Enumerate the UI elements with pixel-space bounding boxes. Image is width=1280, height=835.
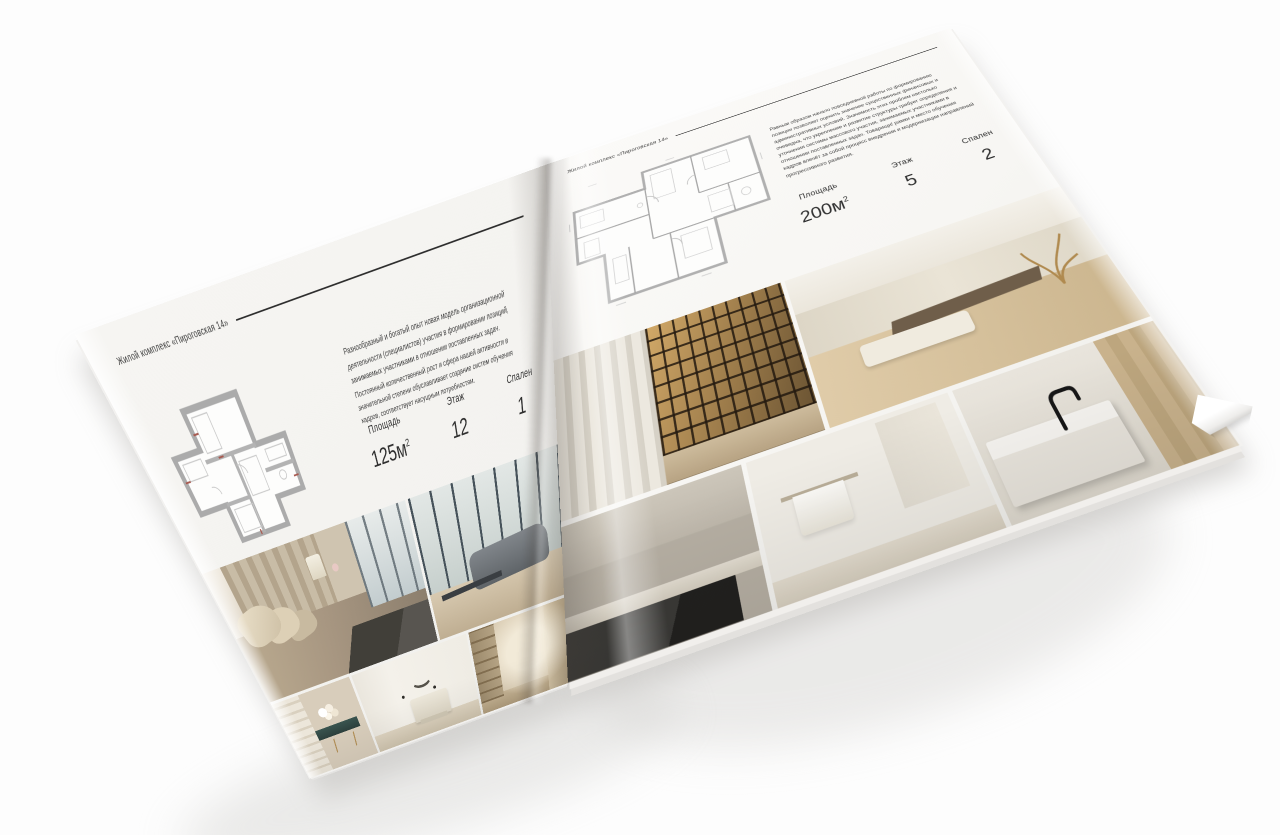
flower-bouquet-shape xyxy=(313,701,342,725)
bed-pillows-shape xyxy=(233,597,287,652)
towel-shape xyxy=(792,479,855,537)
stat-floor: Этаж 12 xyxy=(446,389,471,445)
table-lamp-shape xyxy=(305,553,327,581)
sconce-lights-shape xyxy=(401,696,405,700)
stat-floor: Этаж 5 xyxy=(890,155,927,193)
console-legs-shape xyxy=(333,731,357,752)
stat-bedrooms: Спален 2 xyxy=(960,128,1009,168)
magazine-mockup-scene: Жилой комплекс «Пироговская 14» Разнообр… xyxy=(0,0,1280,835)
flower-shape xyxy=(329,560,342,574)
stat-bedrooms: Спален 1 xyxy=(506,364,535,424)
stat-area: Площадь 200м2 xyxy=(793,180,853,228)
left-page-title: Жилой комплекс «Пироговская 14» xyxy=(115,318,230,369)
wall-wreath-shape xyxy=(408,667,433,691)
